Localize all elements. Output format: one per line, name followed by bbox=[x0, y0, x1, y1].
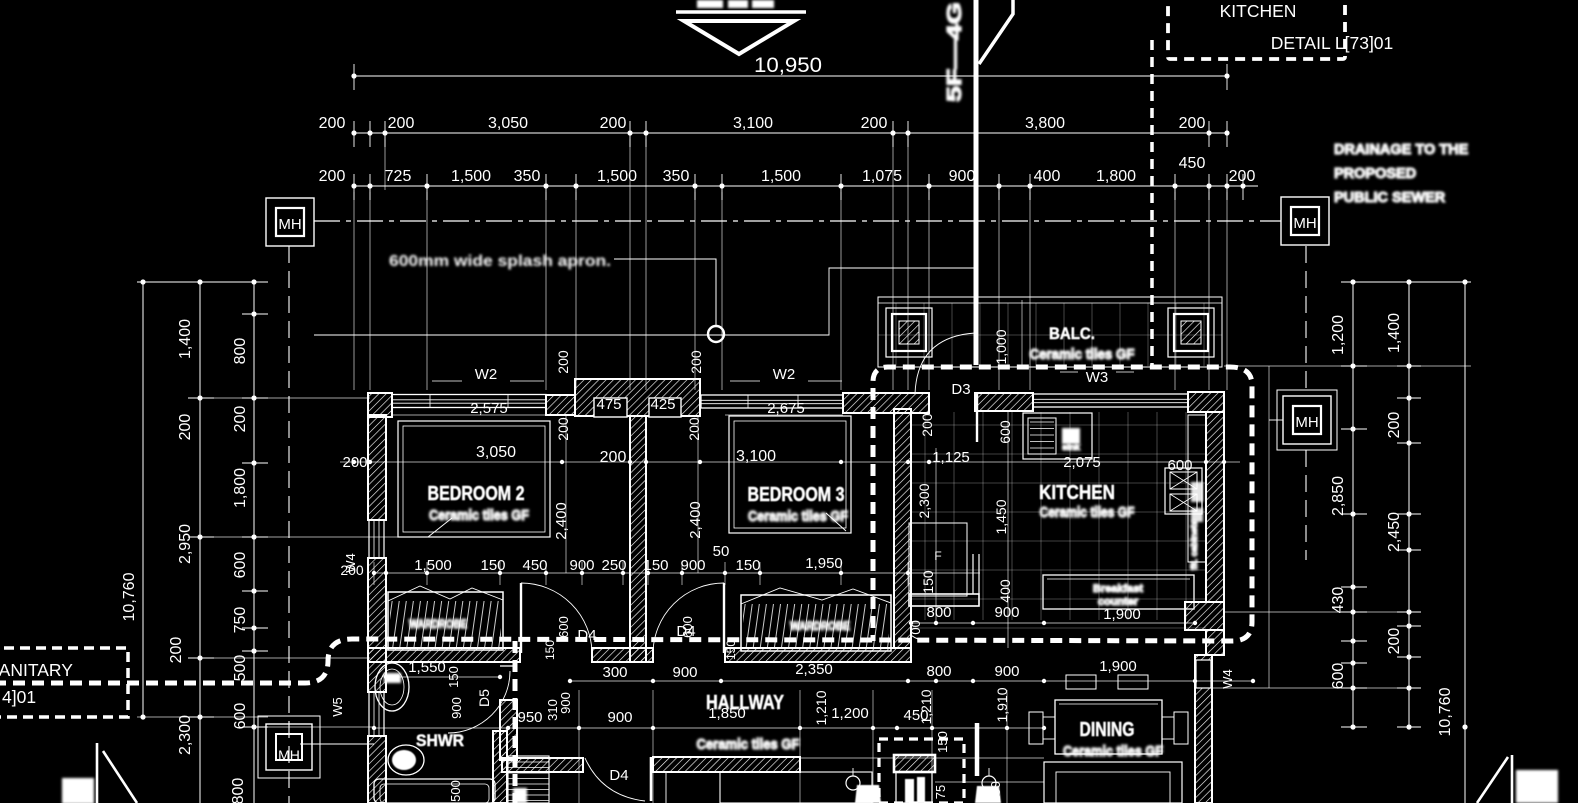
svg-text:1,950: 1,950 bbox=[805, 555, 843, 572]
svg-text:PROPOSED: PROPOSED bbox=[1334, 166, 1416, 182]
svg-text:3,050: 3,050 bbox=[488, 115, 528, 132]
svg-text:900: 900 bbox=[449, 697, 464, 719]
svg-text:600: 600 bbox=[1167, 457, 1192, 474]
svg-text:1,910: 1,910 bbox=[994, 687, 1010, 722]
svg-text:900: 900 bbox=[994, 604, 1019, 621]
svg-text:1,500: 1,500 bbox=[414, 557, 452, 574]
svg-text:200: 200 bbox=[319, 168, 346, 185]
svg-text:200: 200 bbox=[1179, 115, 1206, 132]
svg-text:Ceramic tiles GF: Ceramic tiles GF bbox=[1040, 504, 1135, 521]
svg-text:1,850: 1,850 bbox=[708, 705, 746, 722]
svg-text:2,950: 2,950 bbox=[177, 524, 194, 564]
svg-text:200: 200 bbox=[232, 406, 249, 433]
svg-text:1,900: 1,900 bbox=[1099, 658, 1137, 675]
svg-text:400: 400 bbox=[997, 579, 1013, 603]
svg-text:500: 500 bbox=[448, 780, 463, 802]
svg-text:200: 200 bbox=[388, 115, 415, 132]
svg-text:Ceramic tiles GF: Ceramic tiles GF bbox=[1030, 347, 1135, 363]
svg-text:350: 350 bbox=[663, 168, 690, 185]
svg-text:200: 200 bbox=[600, 115, 627, 132]
svg-text:D3: D3 bbox=[951, 381, 970, 398]
svg-text:900: 900 bbox=[607, 709, 632, 726]
svg-text:900: 900 bbox=[672, 664, 697, 681]
svg-text:600mm wide splash apron.: 600mm wide splash apron. bbox=[389, 253, 611, 270]
svg-text:200: 200 bbox=[919, 413, 935, 437]
svg-text:200: 200 bbox=[686, 417, 702, 441]
svg-text:MH: MH bbox=[278, 216, 301, 233]
svg-text:1,000: 1,000 bbox=[993, 329, 1009, 364]
svg-text:DINING: DINING bbox=[1080, 719, 1135, 741]
svg-text:5F—4G: 5F—4G bbox=[944, 2, 966, 102]
svg-text:75: 75 bbox=[933, 785, 948, 799]
svg-text:1,500: 1,500 bbox=[597, 168, 637, 185]
svg-text:1,800: 1,800 bbox=[1096, 168, 1136, 185]
svg-text:1,200: 1,200 bbox=[1330, 315, 1347, 355]
svg-text:450: 450 bbox=[522, 557, 547, 574]
svg-text:KITCHEN: KITCHEN bbox=[1039, 482, 1115, 504]
svg-text:D4: D4 bbox=[676, 623, 695, 640]
svg-text:200: 200 bbox=[555, 350, 571, 374]
svg-text:PUBLIC SEWER: PUBLIC SEWER bbox=[1334, 190, 1446, 206]
svg-text:1,200: 1,200 bbox=[831, 705, 869, 722]
svg-text:2,300: 2,300 bbox=[916, 483, 932, 518]
svg-text:2,575: 2,575 bbox=[470, 400, 508, 417]
svg-text:200: 200 bbox=[177, 414, 194, 441]
svg-text:Ceramic tiles GF: Ceramic tiles GF bbox=[748, 508, 848, 525]
svg-text:800: 800 bbox=[232, 338, 249, 365]
svg-text:600: 600 bbox=[556, 616, 571, 638]
svg-text:475: 475 bbox=[596, 396, 621, 413]
svg-text:WARDROBE: WARDROBE bbox=[790, 619, 850, 633]
svg-text:2,350: 2,350 bbox=[795, 661, 833, 678]
svg-text:3,100: 3,100 bbox=[733, 115, 773, 132]
svg-text:350: 350 bbox=[514, 168, 541, 185]
svg-text:2,850: 2,850 bbox=[1330, 476, 1347, 516]
svg-text:450: 450 bbox=[1179, 155, 1206, 172]
svg-text:900: 900 bbox=[558, 692, 573, 714]
svg-text:1,075: 1,075 bbox=[862, 168, 902, 185]
svg-text:1,400: 1,400 bbox=[177, 319, 194, 359]
svg-text:Ceramic tiles GF: Ceramic tiles GF bbox=[429, 507, 529, 524]
svg-text:2,400: 2,400 bbox=[687, 501, 704, 539]
svg-text:KITCHEN: KITCHEN bbox=[1220, 1, 1297, 21]
svg-text:500: 500 bbox=[232, 655, 249, 682]
svg-text:900: 900 bbox=[994, 663, 1019, 680]
svg-text:W4: W4 bbox=[343, 553, 358, 573]
svg-text:200: 200 bbox=[1229, 168, 1256, 185]
svg-text:900: 900 bbox=[569, 557, 594, 574]
svg-text:150: 150 bbox=[543, 640, 557, 660]
svg-text:2,075: 2,075 bbox=[1063, 454, 1101, 471]
svg-text:600: 600 bbox=[997, 420, 1013, 444]
svg-text:700: 700 bbox=[908, 620, 923, 642]
svg-text:WC: WC bbox=[398, 757, 413, 767]
svg-text:W2: W2 bbox=[475, 366, 498, 383]
svg-text:4]01: 4]01 bbox=[2, 687, 36, 707]
svg-text:150: 150 bbox=[935, 731, 950, 753]
svg-text:400: 400 bbox=[1034, 168, 1061, 185]
svg-text:200: 200 bbox=[688, 350, 704, 374]
svg-text:D4: D4 bbox=[609, 767, 628, 784]
svg-text:W4: W4 bbox=[1220, 669, 1235, 689]
svg-text:2,300: 2,300 bbox=[177, 715, 194, 755]
svg-text:W2: W2 bbox=[773, 366, 796, 383]
svg-text:200: 200 bbox=[319, 115, 346, 132]
svg-text:200: 200 bbox=[1386, 412, 1403, 439]
svg-text:50: 50 bbox=[713, 543, 730, 560]
svg-text:D5: D5 bbox=[476, 689, 492, 707]
svg-text:900: 900 bbox=[680, 557, 705, 574]
svg-text:600: 600 bbox=[1330, 663, 1347, 690]
svg-text:1,400: 1,400 bbox=[1386, 313, 1403, 353]
svg-text:950: 950 bbox=[517, 709, 542, 726]
svg-text:725: 725 bbox=[385, 168, 412, 185]
svg-text:200: 200 bbox=[861, 115, 888, 132]
svg-text:Breakfast: Breakfast bbox=[1093, 583, 1143, 595]
svg-text:1,210: 1,210 bbox=[918, 689, 934, 724]
svg-text:1,550: 1,550 bbox=[408, 659, 446, 676]
svg-text:200: 200 bbox=[1386, 628, 1403, 655]
svg-text:150: 150 bbox=[446, 666, 461, 688]
svg-text:10,760: 10,760 bbox=[1437, 687, 1454, 736]
svg-text:750: 750 bbox=[232, 607, 249, 634]
svg-text:WARDROBE: WARDROBE bbox=[409, 617, 467, 631]
svg-text:F: F bbox=[934, 549, 941, 563]
svg-text:425: 425 bbox=[650, 396, 675, 413]
svg-text:W3: W3 bbox=[1086, 369, 1109, 386]
svg-text:150: 150 bbox=[920, 570, 936, 594]
svg-text:800: 800 bbox=[230, 778, 247, 803]
svg-text:150: 150 bbox=[735, 557, 760, 574]
svg-text:150: 150 bbox=[724, 640, 738, 660]
svg-text:DRAINAGE TO THE: DRAINAGE TO THE bbox=[1334, 142, 1469, 158]
svg-text:2,675: 2,675 bbox=[767, 400, 805, 417]
svg-text:600: 600 bbox=[232, 703, 249, 730]
svg-text:Ceramic tiles GF: Ceramic tiles GF bbox=[697, 736, 800, 753]
svg-text:150: 150 bbox=[480, 557, 505, 574]
svg-text:600: 600 bbox=[232, 552, 249, 579]
svg-text:BEDROOM 3: BEDROOM 3 bbox=[748, 484, 845, 506]
svg-text:10,760: 10,760 bbox=[121, 572, 138, 621]
svg-text:BALC.: BALC. bbox=[1049, 325, 1095, 343]
svg-text:1,500: 1,500 bbox=[761, 168, 801, 185]
svg-text:SANITARY: SANITARY bbox=[0, 660, 73, 680]
svg-text:W5: W5 bbox=[330, 697, 345, 717]
svg-text:3,050: 3,050 bbox=[476, 444, 516, 461]
svg-text:sink: sink bbox=[1062, 442, 1081, 452]
svg-text:200: 200 bbox=[600, 449, 627, 466]
svg-text:200: 200 bbox=[168, 637, 185, 664]
svg-text:2,450: 2,450 bbox=[1386, 512, 1403, 552]
svg-text:10,950: 10,950 bbox=[754, 54, 822, 77]
svg-text:1,450: 1,450 bbox=[993, 499, 1009, 534]
svg-text:250: 250 bbox=[601, 557, 626, 574]
svg-text:1,800: 1,800 bbox=[232, 468, 249, 508]
svg-text:800: 800 bbox=[926, 663, 951, 680]
svg-text:SHWR: SHWR bbox=[416, 732, 464, 750]
svg-text:MH: MH bbox=[1295, 414, 1318, 431]
svg-text:150: 150 bbox=[643, 557, 668, 574]
svg-text:2,400: 2,400 bbox=[553, 502, 570, 540]
svg-text:1,210: 1,210 bbox=[813, 690, 829, 725]
svg-text:D4: D4 bbox=[577, 627, 596, 644]
svg-text:Ceramic tiles GF: Ceramic tiles GF bbox=[1063, 743, 1163, 760]
svg-text:MH: MH bbox=[278, 747, 300, 763]
svg-text:1,125: 1,125 bbox=[932, 449, 970, 466]
svg-text:BEDROOM 2: BEDROOM 2 bbox=[428, 483, 525, 505]
svg-text:MH: MH bbox=[1293, 215, 1316, 232]
svg-text:200: 200 bbox=[555, 417, 571, 441]
svg-text:430: 430 bbox=[1330, 587, 1347, 614]
svg-text:fit. cabinets: fit. cabinets bbox=[1189, 520, 1199, 570]
svg-text:1,500: 1,500 bbox=[451, 168, 491, 185]
svg-text:900: 900 bbox=[949, 168, 976, 185]
svg-text:3,800: 3,800 bbox=[1025, 115, 1065, 132]
svg-text:300: 300 bbox=[602, 664, 627, 681]
svg-text:1,900: 1,900 bbox=[1103, 606, 1141, 623]
svg-text:3,100: 3,100 bbox=[736, 448, 776, 465]
svg-text:DETAIL L[73]01: DETAIL L[73]01 bbox=[1271, 33, 1394, 53]
